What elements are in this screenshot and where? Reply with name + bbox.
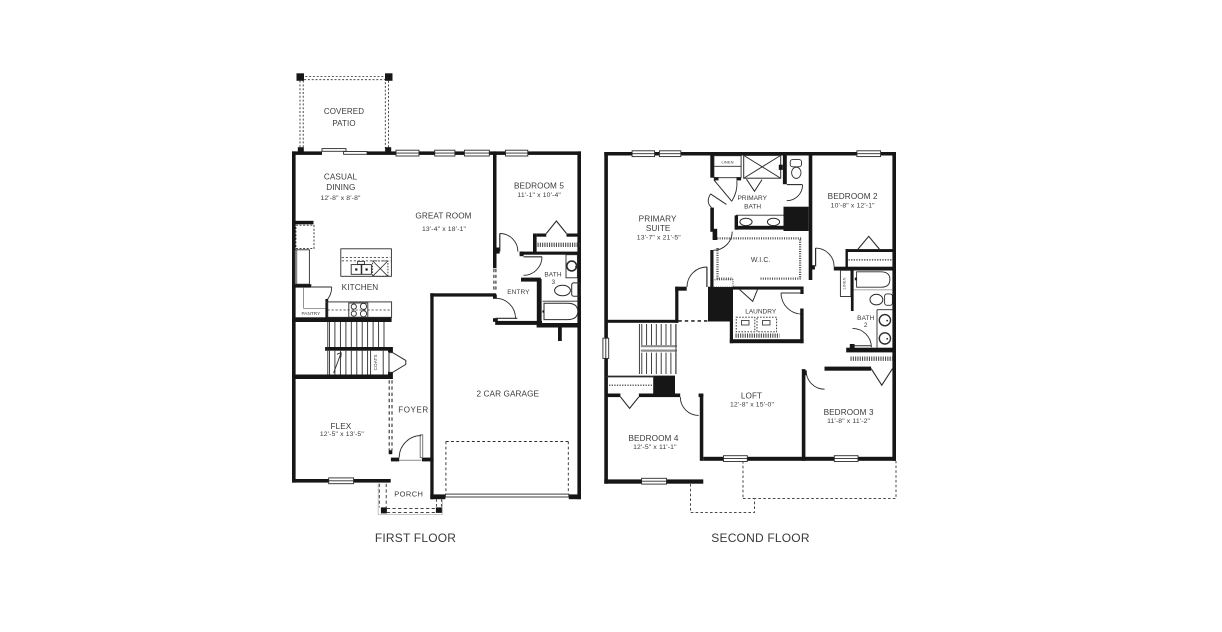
svg-text:12'-5" x 11'-1": 12'-5" x 11'-1" (633, 444, 677, 451)
svg-text:13'-4" x 18'-1": 13'-4" x 18'-1" (422, 226, 466, 233)
svg-text:SUITE: SUITE (646, 224, 671, 233)
svg-text:BEDROOM 2: BEDROOM 2 (828, 192, 878, 201)
svg-text:PANTRY: PANTRY (301, 311, 320, 316)
svg-text:10'-8" x 12'-1": 10'-8" x 12'-1" (831, 203, 875, 210)
svg-text:W.I.C.: W.I.C. (751, 257, 771, 264)
svg-text:11'-8" x 11'-2": 11'-8" x 11'-2" (827, 418, 870, 425)
svg-text:FLEX: FLEX (330, 422, 351, 431)
svg-text:12'-8" x 8'-8": 12'-8" x 8'-8" (320, 195, 361, 202)
svg-text:PORCH: PORCH (394, 490, 423, 499)
svg-text:12'-5" x 13'-5": 12'-5" x 13'-5" (320, 431, 364, 438)
svg-text:COVERED: COVERED (324, 107, 364, 116)
svg-text:ENTRY: ENTRY (507, 289, 530, 296)
svg-text:PATIO: PATIO (332, 119, 355, 128)
svg-text:BATH: BATH (544, 272, 561, 279)
svg-text:LINEN: LINEN (841, 277, 846, 289)
svg-text:LINEN: LINEN (721, 160, 733, 165)
svg-text:KITCHEN: KITCHEN (342, 283, 379, 292)
svg-text:2 CAR GARAGE: 2 CAR GARAGE (476, 390, 539, 399)
svg-text:PRIMARY: PRIMARY (639, 215, 677, 224)
svg-text:BEDROOM 4: BEDROOM 4 (628, 434, 678, 443)
svg-text:CASUAL: CASUAL (324, 173, 358, 182)
svg-text:LOFT: LOFT (741, 391, 762, 400)
svg-text:LAUNDRY: LAUNDRY (745, 308, 777, 315)
svg-text:BEDROOM 5: BEDROOM 5 (514, 182, 564, 191)
svg-text:BATH: BATH (744, 203, 761, 210)
svg-text:BATH: BATH (857, 315, 874, 322)
svg-text:BEDROOM 3: BEDROOM 3 (824, 408, 874, 417)
svg-text:COATS: COATS (373, 354, 378, 370)
svg-text:FIRST FLOOR: FIRST FLOOR (375, 531, 456, 545)
svg-text:GREAT ROOM: GREAT ROOM (415, 211, 471, 220)
svg-text:SECOND FLOOR: SECOND FLOOR (711, 531, 810, 545)
svg-text:2: 2 (864, 322, 868, 329)
svg-text:PRIMARY: PRIMARY (737, 195, 767, 202)
svg-text:DINING: DINING (326, 183, 355, 192)
svg-text:11'-1" x 10'-4": 11'-1" x 10'-4" (517, 192, 561, 199)
svg-text:12'-8" x 15'-0": 12'-8" x 15'-0" (730, 401, 774, 408)
svg-text:13'-7" x 21'-5": 13'-7" x 21'-5" (637, 235, 681, 242)
svg-text:FOYER: FOYER (398, 406, 429, 415)
svg-text:3: 3 (552, 279, 556, 286)
